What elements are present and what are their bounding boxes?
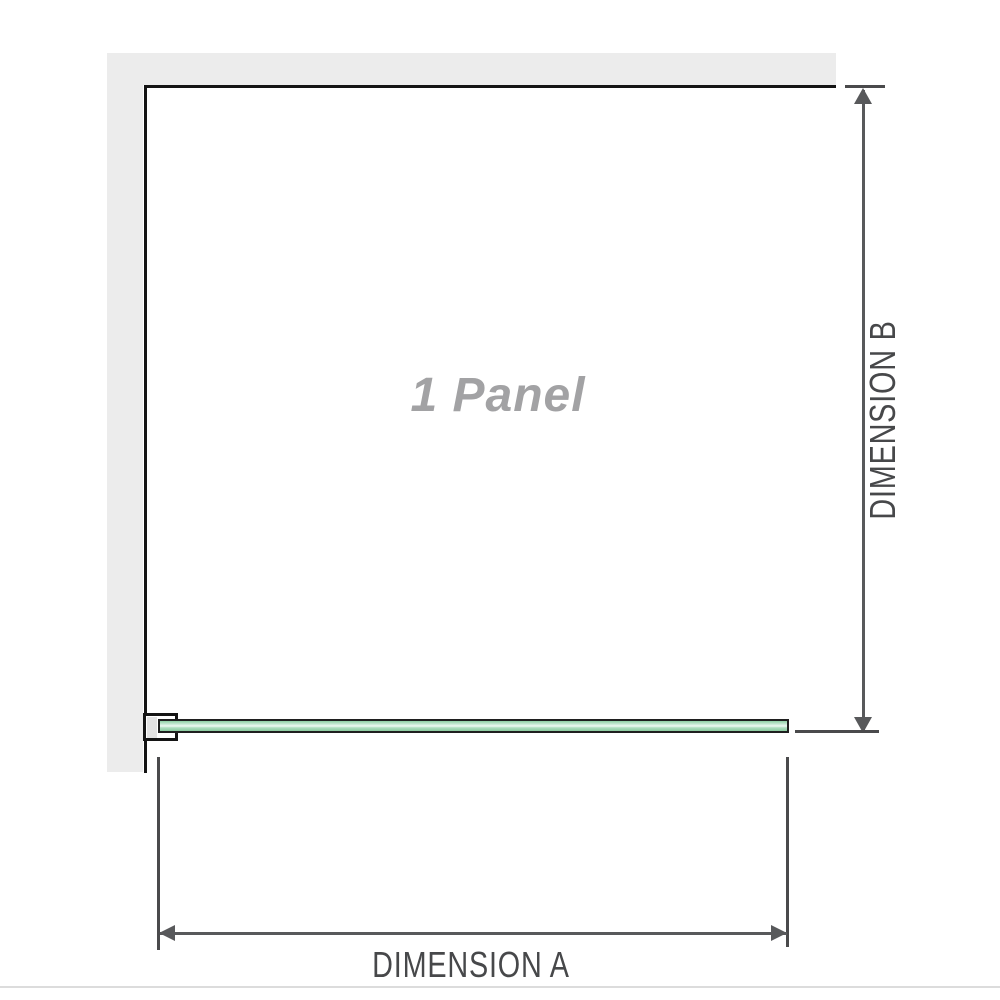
dimension-b-tick-top xyxy=(845,85,885,88)
dimension-b-label: DIMENSION B xyxy=(863,300,903,540)
dimension-a-label: DIMENSION A xyxy=(351,947,591,983)
room-border-top xyxy=(144,85,836,88)
wall-top xyxy=(107,53,836,85)
wall-left xyxy=(107,53,143,772)
wall-bracket-inner xyxy=(147,717,157,738)
panel-count-label: 1 Panel xyxy=(348,370,648,422)
glass-panel xyxy=(158,719,789,733)
shower-panel-dimension-diagram: 1 Panel DIMENSION B DIMENSION A xyxy=(0,0,1000,1000)
dimension-a-tick-left xyxy=(157,757,160,950)
dimension-a-line xyxy=(160,932,787,935)
room-border-left xyxy=(144,85,147,773)
dimension-a-tick-right xyxy=(786,757,789,947)
dimension-a-arrow-right-icon xyxy=(771,925,787,941)
dimension-a-arrow-left-icon xyxy=(159,925,175,941)
dimension-b-arrow-up-icon xyxy=(854,88,872,104)
dimension-b-tick-bottom xyxy=(795,730,879,733)
bottom-rule xyxy=(0,986,1000,988)
